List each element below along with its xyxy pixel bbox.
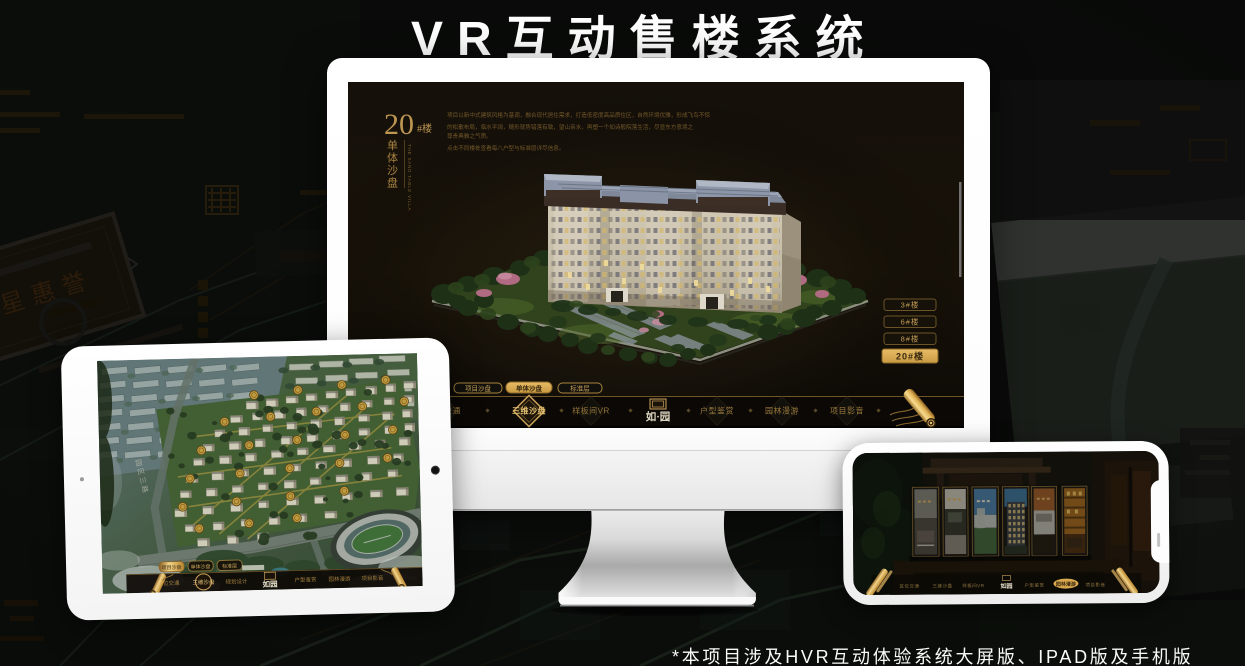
svg-text:如园: 如园 xyxy=(1000,582,1012,590)
svg-text:项目影音: 项目影音 xyxy=(830,406,864,416)
svg-text:项目以新中式建筑风格为基调，融合现代居住需求，打造低密度高品: 项目以新中式建筑风格为基调，融合现代居住需求，打造低密度高品质住区，自然环境优雅… xyxy=(447,111,710,119)
svg-text:样板间VR: 样板间VR xyxy=(572,406,610,416)
svg-text:项目沙盘: 项目沙盘 xyxy=(465,384,492,393)
svg-text:20#楼: 20#楼 xyxy=(896,351,924,362)
svg-text:如·园: 如·园 xyxy=(646,410,671,423)
svg-text:单体沙盘: 单体沙盘 xyxy=(516,384,543,393)
svg-text:标准层: 标准层 xyxy=(570,384,590,393)
svg-text:户型鉴赏: 户型鉴赏 xyxy=(700,406,734,416)
svg-text:盘: 盘 xyxy=(387,176,398,190)
svg-text:的松散布局，临水平阔，随形就势错落有致，望山亲水，再塑一个如: 的松散布局，临水平阔，随形就势错落有致，望山亲水，再塑一个如诗般院落生活，尽显东… xyxy=(447,123,694,131)
svg-text:#楼: #楼 xyxy=(417,122,432,135)
svg-text:如园: 如园 xyxy=(262,579,278,589)
svg-text:点击不同楼栋查看每八户型与标准层详尽信息。: 点击不同楼栋查看每八户型与标准层详尽信息。 xyxy=(447,144,564,152)
svg-text:6#楼: 6#楼 xyxy=(901,317,920,327)
svg-text:单体沙盘: 单体沙盘 xyxy=(191,563,211,570)
svg-text:8#楼: 8#楼 xyxy=(901,334,920,344)
svg-text:20: 20 xyxy=(384,108,414,141)
svg-text:项目沙盘: 项目沙盘 xyxy=(162,564,182,571)
svg-text:三维沙盘: 三维沙盘 xyxy=(512,406,546,416)
svg-text:沙: 沙 xyxy=(387,164,398,177)
svg-text:体: 体 xyxy=(387,151,398,165)
svg-text:园林漫游: 园林漫游 xyxy=(1056,581,1076,588)
svg-text:单: 单 xyxy=(387,139,398,152)
svg-text:园林漫游: 园林漫游 xyxy=(765,406,799,416)
svg-text:THE SAND TABLE VILLA: THE SAND TABLE VILLA xyxy=(407,144,412,211)
svg-text:尊贵典雅之气质。: 尊贵典雅之气质。 xyxy=(447,132,492,140)
svg-text:3#楼: 3#楼 xyxy=(901,300,920,310)
svg-text:标准层: 标准层 xyxy=(222,563,237,570)
